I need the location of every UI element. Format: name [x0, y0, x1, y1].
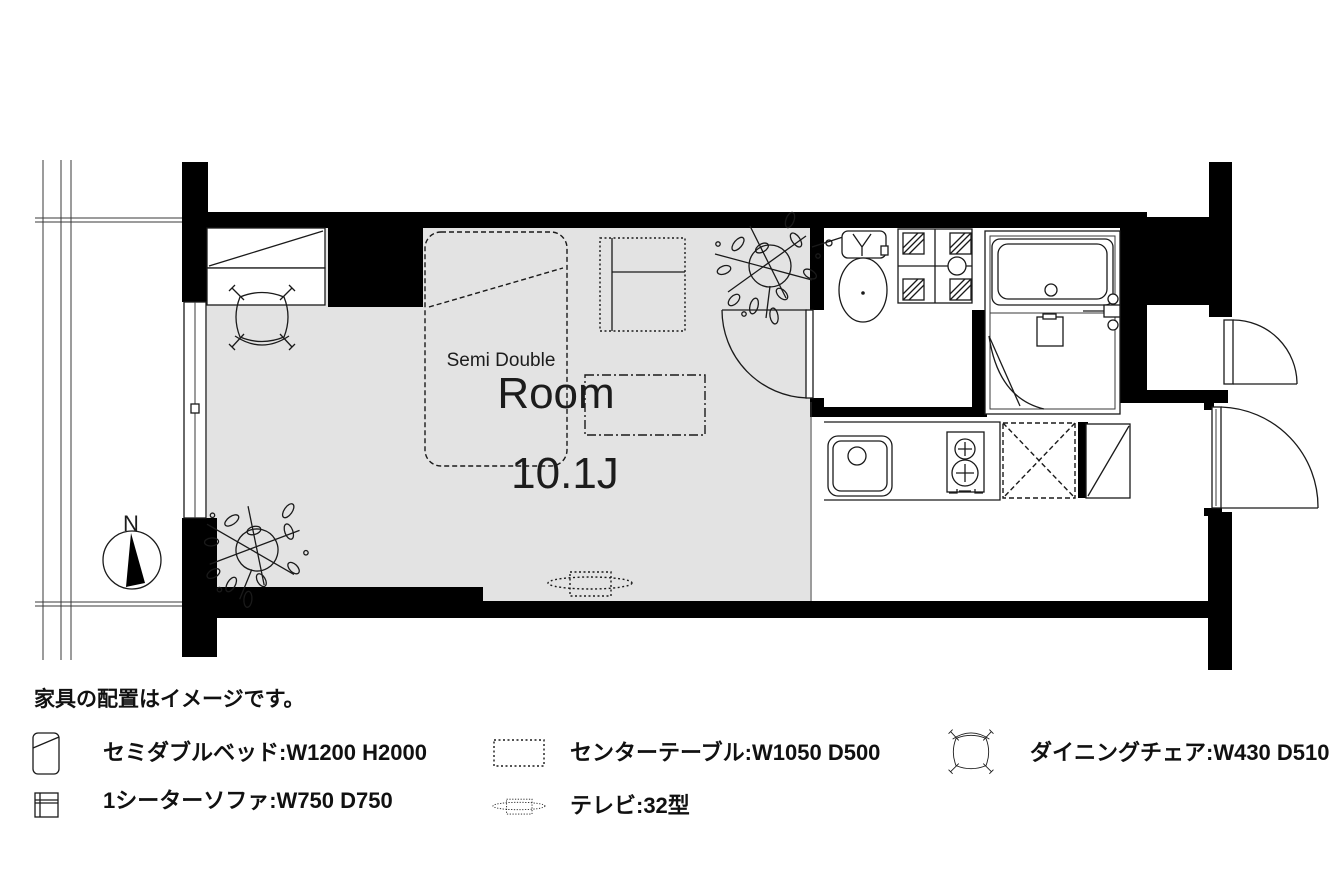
pillar: [328, 225, 423, 307]
room-size-label: 10.1J: [511, 449, 619, 498]
legend-chair-label: ダイニングチェア:W430 D510: [1030, 740, 1330, 765]
legend-table-label: センターテーブル:W1050 D500: [570, 740, 880, 765]
washing-machine-pan: [898, 229, 972, 303]
bathroom: [985, 231, 1120, 414]
closet-shelf: [207, 228, 325, 268]
stove: [947, 432, 984, 493]
legend-sofa-label: 1シーターソファ:W750 D750: [103, 788, 393, 813]
tv-icon: [493, 799, 545, 814]
legend-note: 家具の配置はイメージです。: [34, 687, 304, 711]
balcony: [35, 160, 182, 660]
shoe-closet: [1086, 424, 1130, 498]
room-name-label: Room: [497, 369, 614, 418]
floor-plan-page: N Semi Double Room 10.1J 家具の配置はイメージです。 セ…: [0, 0, 1330, 888]
entrance-door: [1212, 407, 1318, 508]
bath-counter: [1037, 314, 1063, 346]
service-door: [1224, 320, 1297, 384]
window: [184, 302, 206, 518]
bed-size-label: Semi Double: [447, 350, 556, 371]
legend-tv-label: テレビ:32型: [570, 793, 690, 818]
legend-bed-label: セミダブルベッド:W1200 H2000: [103, 740, 427, 765]
drain: [948, 257, 966, 275]
chair-icon: [949, 730, 994, 774]
refrigerator-space: [1003, 423, 1075, 498]
table-icon: [494, 740, 544, 766]
kitchen-sink: [828, 436, 892, 496]
bed-icon: [33, 733, 59, 774]
floor-plan: N Semi Double Room 10.1J 家具の配置はイメージです。 セ…: [0, 0, 1330, 888]
north-compass: N: [103, 511, 161, 589]
compass-label: N: [123, 511, 139, 536]
desk: [207, 268, 325, 305]
sofa-icon: [35, 793, 58, 817]
legend: 家具の配置はイメージです。 セミダブルベッド:W1200 H2000 1シーター…: [33, 687, 1330, 818]
